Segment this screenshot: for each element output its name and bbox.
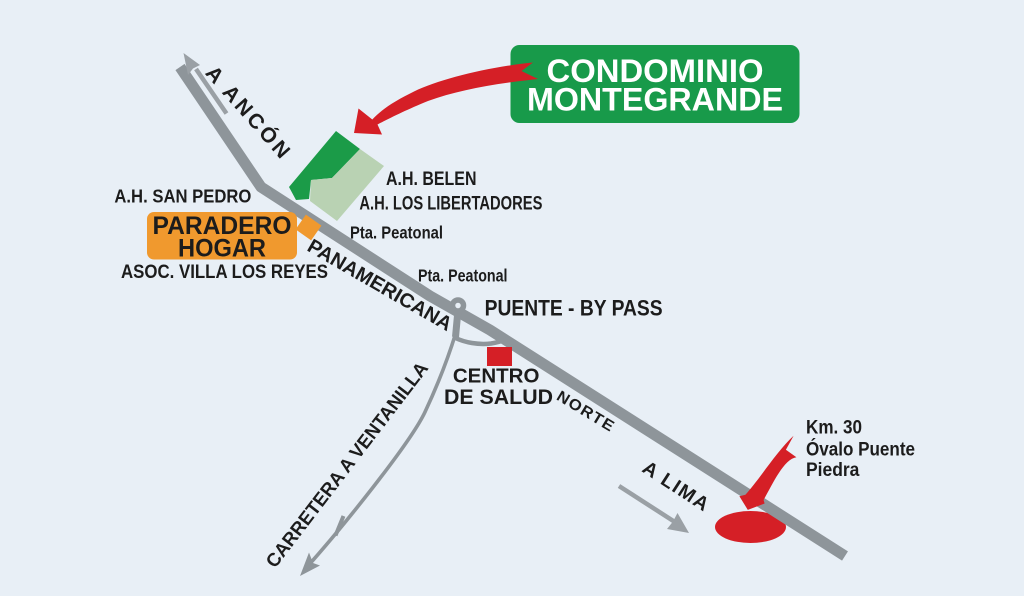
svg-text:Pta. Peatonal: Pta. Peatonal bbox=[418, 266, 508, 286]
svg-text:ASOC. VILLA LOS REYES: ASOC. VILLA LOS REYES bbox=[121, 261, 328, 283]
svg-text:Piedra: Piedra bbox=[806, 460, 860, 481]
svg-text:PUENTE - BY PASS: PUENTE - BY PASS bbox=[485, 295, 663, 320]
svg-text:CENTRO: CENTRO bbox=[453, 366, 540, 388]
svg-text:MONTEGRANDE: MONTEGRANDE bbox=[527, 81, 783, 117]
svg-text:HOGAR: HOGAR bbox=[178, 235, 266, 263]
svg-text:DE SALUD: DE SALUD bbox=[444, 386, 553, 409]
svg-text:Pta. Peatonal: Pta. Peatonal bbox=[350, 223, 443, 243]
svg-text:Km. 30: Km. 30 bbox=[806, 418, 862, 439]
svg-text:A.H. BELEN: A.H. BELEN bbox=[386, 168, 477, 190]
svg-text:A.H. SAN PEDRO: A.H. SAN PEDRO bbox=[114, 185, 251, 206]
svg-text:Óvalo Puente: Óvalo Puente bbox=[806, 437, 915, 461]
svg-text:A.H. LOS LIBERTADORES: A.H. LOS LIBERTADORES bbox=[359, 194, 542, 215]
